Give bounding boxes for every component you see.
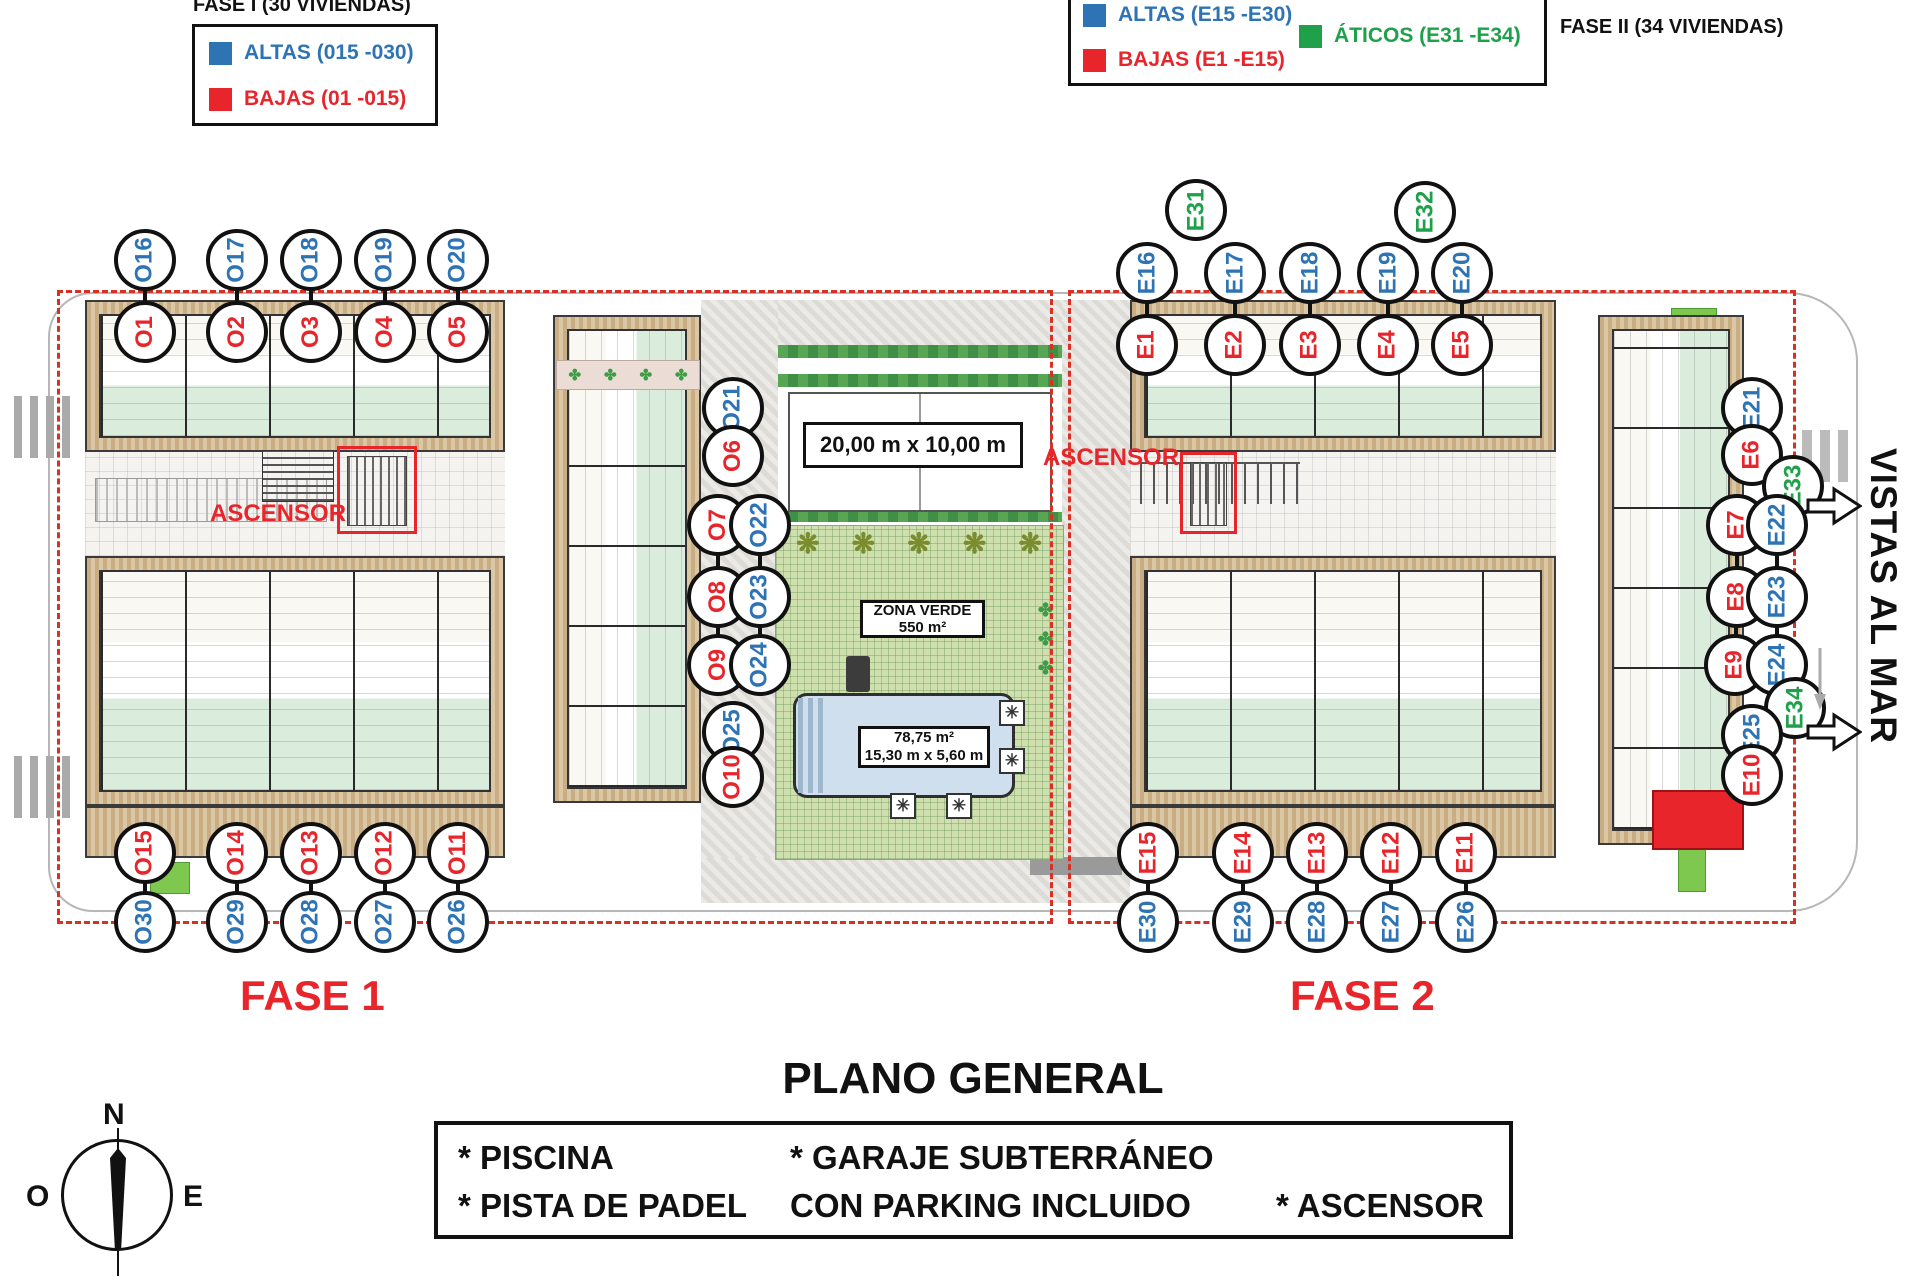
- down-arrow-icon: [1812, 648, 1828, 717]
- compass-east-label: E: [183, 1180, 203, 1214]
- unit-marker-E27: E27: [1360, 891, 1422, 953]
- legend-fase1-title: FASE I (30 VIVIENDAS): [193, 0, 411, 17]
- unit-marker-label: E2: [1221, 330, 1249, 359]
- unit-marker-O5: O5: [427, 301, 489, 363]
- padel-size-text: 20,00 m x 10,00 m: [820, 432, 1006, 458]
- unit-marker-O17: O17: [206, 229, 268, 291]
- unit-marker-O27: O27: [354, 891, 416, 953]
- legend-fase2-title: FASE II (34 VIVIENDAS): [1560, 16, 1783, 39]
- unit-marker-label: O21: [719, 385, 747, 430]
- unit-marker-O23: O23: [729, 566, 791, 628]
- unit-marker-O1: O1: [114, 301, 176, 363]
- unit-marker-O30: O30: [114, 891, 176, 953]
- unit-marker-O2: O2: [206, 301, 268, 363]
- unit-marker-label: E5: [1448, 330, 1476, 359]
- unit-marker-O19: O19: [354, 229, 416, 291]
- unit-marker-O26: O26: [427, 891, 489, 953]
- unit-marker-label: O27: [371, 899, 399, 944]
- unit-marker-label: O23: [746, 574, 774, 619]
- unit-marker-label: E14: [1229, 832, 1257, 875]
- unit-marker-label: E12: [1377, 832, 1405, 875]
- amenity-item: * ASCENSOR: [1276, 1187, 1484, 1225]
- unit-marker-E2: E2: [1204, 314, 1266, 376]
- unit-marker-E22: E22: [1746, 494, 1808, 556]
- unit-marker-label: O3: [297, 316, 325, 348]
- unit-marker-label: E11: [1452, 832, 1480, 873]
- unit-marker-E13: E13: [1286, 822, 1348, 884]
- green-zone-text: ZONA VERDE: [874, 602, 972, 619]
- unit-marker-label: E20: [1448, 252, 1476, 295]
- unit-marker-O24: O24: [729, 634, 791, 696]
- unit-marker-label: E19: [1374, 252, 1402, 295]
- unit-marker-O6: O6: [702, 425, 764, 487]
- legend-label: BAJAS (01 -015): [244, 87, 406, 111]
- unit-marker-label: O26: [444, 899, 472, 944]
- unit-marker-label: E4: [1374, 330, 1402, 359]
- unit-marker-label: E17: [1221, 252, 1249, 295]
- unit-marker-O4: O4: [354, 301, 416, 363]
- unit-marker-label: E31: [1182, 189, 1210, 232]
- unit-marker-label: O5: [444, 316, 472, 348]
- compass-north-label: N: [103, 1098, 125, 1132]
- unit-marker-label: E23: [1763, 576, 1791, 619]
- fase2-boundary: [1068, 290, 1796, 924]
- unit-marker-E12: E12: [1360, 822, 1422, 884]
- unit-marker-O10: O10: [702, 746, 764, 808]
- unit-marker-O28: O28: [280, 891, 342, 953]
- pool-area-text: 78,75 m²: [894, 729, 954, 747]
- unit-marker-E18: E18: [1279, 242, 1341, 304]
- legend-swatch: [209, 42, 232, 65]
- unit-marker-label: O4: [371, 316, 399, 348]
- amenities-box: * PISCINA* GARAJE SUBTERRÁNEO* PISTA DE …: [434, 1121, 1513, 1239]
- unit-marker-E10: E10: [1721, 744, 1783, 806]
- unit-marker-O15: O15: [114, 822, 176, 884]
- unit-marker-label: E10: [1738, 754, 1766, 797]
- fase2-label: FASE 2: [1290, 972, 1435, 1020]
- unit-marker-E15: E15: [1117, 822, 1179, 884]
- sea-direction-arrow-icon: [1806, 486, 1862, 531]
- unit-marker-label: E28: [1303, 901, 1331, 944]
- unit-marker-label: O16: [131, 237, 159, 282]
- legend-item: ÁTICOS (E31 -E34): [1299, 24, 1521, 48]
- unit-marker-label: O17: [223, 237, 251, 282]
- legend-item: BAJAS (E1 -E15): [1083, 48, 1285, 72]
- compass-west-label: O: [26, 1180, 49, 1214]
- unit-marker-label: O6: [719, 440, 747, 472]
- unit-marker-E3: E3: [1279, 314, 1341, 376]
- legend-label: ALTAS (015 -030): [244, 41, 414, 65]
- unit-marker-E17: E17: [1204, 242, 1266, 304]
- legend-item: BAJAS (01 -015): [209, 87, 406, 111]
- unit-marker-E29: E29: [1212, 891, 1274, 953]
- unit-marker-label: O10: [719, 754, 747, 799]
- legend-fase1-box: ALTAS (015 -030)BAJAS (01 -015): [192, 24, 438, 126]
- padel-dimensions-label: 20,00 m x 10,00 m: [803, 422, 1023, 468]
- unit-marker-E30: E30: [1117, 891, 1179, 953]
- legend-swatch: [1299, 25, 1322, 48]
- fase1-label: FASE 1: [240, 972, 385, 1020]
- unit-marker-label: E32: [1411, 191, 1439, 234]
- unit-marker-label: E30: [1134, 901, 1162, 944]
- unit-marker-O12: O12: [354, 822, 416, 884]
- unit-marker-E4: E4: [1357, 314, 1419, 376]
- page-title: PLANO GENERAL: [673, 1054, 1273, 1104]
- unit-marker-E20: E20: [1431, 242, 1493, 304]
- unit-marker-O22: O22: [729, 494, 791, 556]
- sea-view-label: VISTAS AL MAR: [1862, 448, 1904, 744]
- unit-marker-O3: O3: [280, 301, 342, 363]
- unit-marker-label: O1: [131, 316, 159, 348]
- unit-marker-label: O22: [746, 502, 774, 547]
- legend-label: ALTAS (E15 -E30): [1118, 3, 1292, 27]
- unit-marker-E19: E19: [1357, 242, 1419, 304]
- pool-size-text: 15,30 m x 5,60 m: [865, 747, 983, 765]
- legend-swatch: [1083, 49, 1106, 72]
- unit-marker-label: O2: [223, 316, 251, 348]
- unit-marker-label: E3: [1296, 330, 1324, 359]
- unit-marker-E28: E28: [1286, 891, 1348, 953]
- unit-marker-label: O13: [297, 830, 325, 875]
- amenity-item: * PISTA DE PADEL: [458, 1187, 747, 1225]
- unit-marker-label: O20: [444, 237, 472, 282]
- unit-marker-label: E34: [1781, 687, 1809, 730]
- legend-item: ALTAS (015 -030): [209, 41, 414, 65]
- legend-swatch: [1083, 4, 1106, 27]
- unit-marker-label: E15: [1134, 832, 1162, 875]
- unit-marker-label: O14: [223, 830, 251, 875]
- unit-marker-O13: O13: [280, 822, 342, 884]
- unit-marker-E26: E26: [1435, 891, 1497, 953]
- unit-marker-label: O18: [297, 237, 325, 282]
- legend-fase2-box: ALTAS (E15 -E30)BAJAS (E1 -E15)ÁTICOS (E…: [1068, 0, 1547, 86]
- green-zone-label: ZONA VERDE 550 m²: [860, 600, 985, 638]
- ascensor-label-fase2: ASCENSOR: [1043, 444, 1179, 472]
- unit-marker-E32: E32: [1394, 181, 1456, 243]
- amenity-item: CON PARKING INCLUIDO: [790, 1187, 1191, 1225]
- unit-marker-O18: O18: [280, 229, 342, 291]
- legend-item: ALTAS (E15 -E30): [1083, 3, 1292, 27]
- unit-marker-label: E9: [1721, 650, 1749, 679]
- unit-marker-O14: O14: [206, 822, 268, 884]
- unit-marker-E31: E31: [1165, 179, 1227, 241]
- unit-marker-label: O29: [223, 899, 251, 944]
- unit-marker-O16: O16: [114, 229, 176, 291]
- unit-marker-label: O11: [444, 831, 472, 875]
- unit-marker-E14: E14: [1212, 822, 1274, 884]
- unit-marker-E1: E1: [1116, 314, 1178, 376]
- unit-marker-label: E21: [1738, 387, 1766, 430]
- sea-direction-arrow-icon: [1806, 712, 1862, 757]
- ascensor-label-fase1: ASCENSOR: [210, 500, 346, 528]
- unit-marker-label: E26: [1452, 901, 1480, 944]
- unit-marker-label: O24: [746, 642, 774, 687]
- unit-marker-label: E6: [1738, 440, 1766, 469]
- unit-marker-O20: O20: [427, 229, 489, 291]
- unit-marker-label: E18: [1296, 252, 1324, 295]
- legend-label: ÁTICOS (E31 -E34): [1334, 24, 1521, 48]
- unit-marker-label: E22: [1763, 504, 1791, 547]
- unit-marker-label: E16: [1133, 252, 1161, 295]
- unit-marker-E23: E23: [1746, 566, 1808, 628]
- unit-marker-label: O8: [704, 581, 732, 613]
- amenity-item: * GARAJE SUBTERRÁNEO: [790, 1139, 1214, 1177]
- unit-marker-label: O19: [371, 237, 399, 282]
- site-plan: 20,00 m x 10,00 m ZONA VERDE 550 m² 78,7…: [0, 0, 1920, 1280]
- legend-swatch: [209, 88, 232, 111]
- legend-label: BAJAS (E1 -E15): [1118, 48, 1285, 72]
- unit-marker-E11: E11: [1435, 822, 1497, 884]
- unit-marker-label: O30: [131, 899, 159, 944]
- green-zone-area-text: 550 m²: [899, 619, 947, 636]
- unit-marker-label: O9: [704, 649, 732, 681]
- unit-marker-label: E27: [1377, 901, 1405, 944]
- unit-marker-label: E13: [1303, 832, 1331, 875]
- unit-marker-label: O28: [297, 899, 325, 944]
- unit-marker-label: O7: [704, 509, 732, 541]
- pool-label: 78,75 m² 15,30 m x 5,60 m: [858, 726, 990, 768]
- unit-marker-label: O12: [371, 830, 399, 875]
- amenity-item: * PISCINA: [458, 1139, 614, 1177]
- unit-marker-E5: E5: [1431, 314, 1493, 376]
- unit-marker-E16: E16: [1116, 242, 1178, 304]
- unit-marker-O29: O29: [206, 891, 268, 953]
- unit-marker-label: O15: [131, 830, 159, 875]
- unit-marker-O11: O11: [427, 822, 489, 884]
- unit-marker-label: E1: [1133, 330, 1161, 359]
- unit-marker-label: E29: [1229, 901, 1257, 944]
